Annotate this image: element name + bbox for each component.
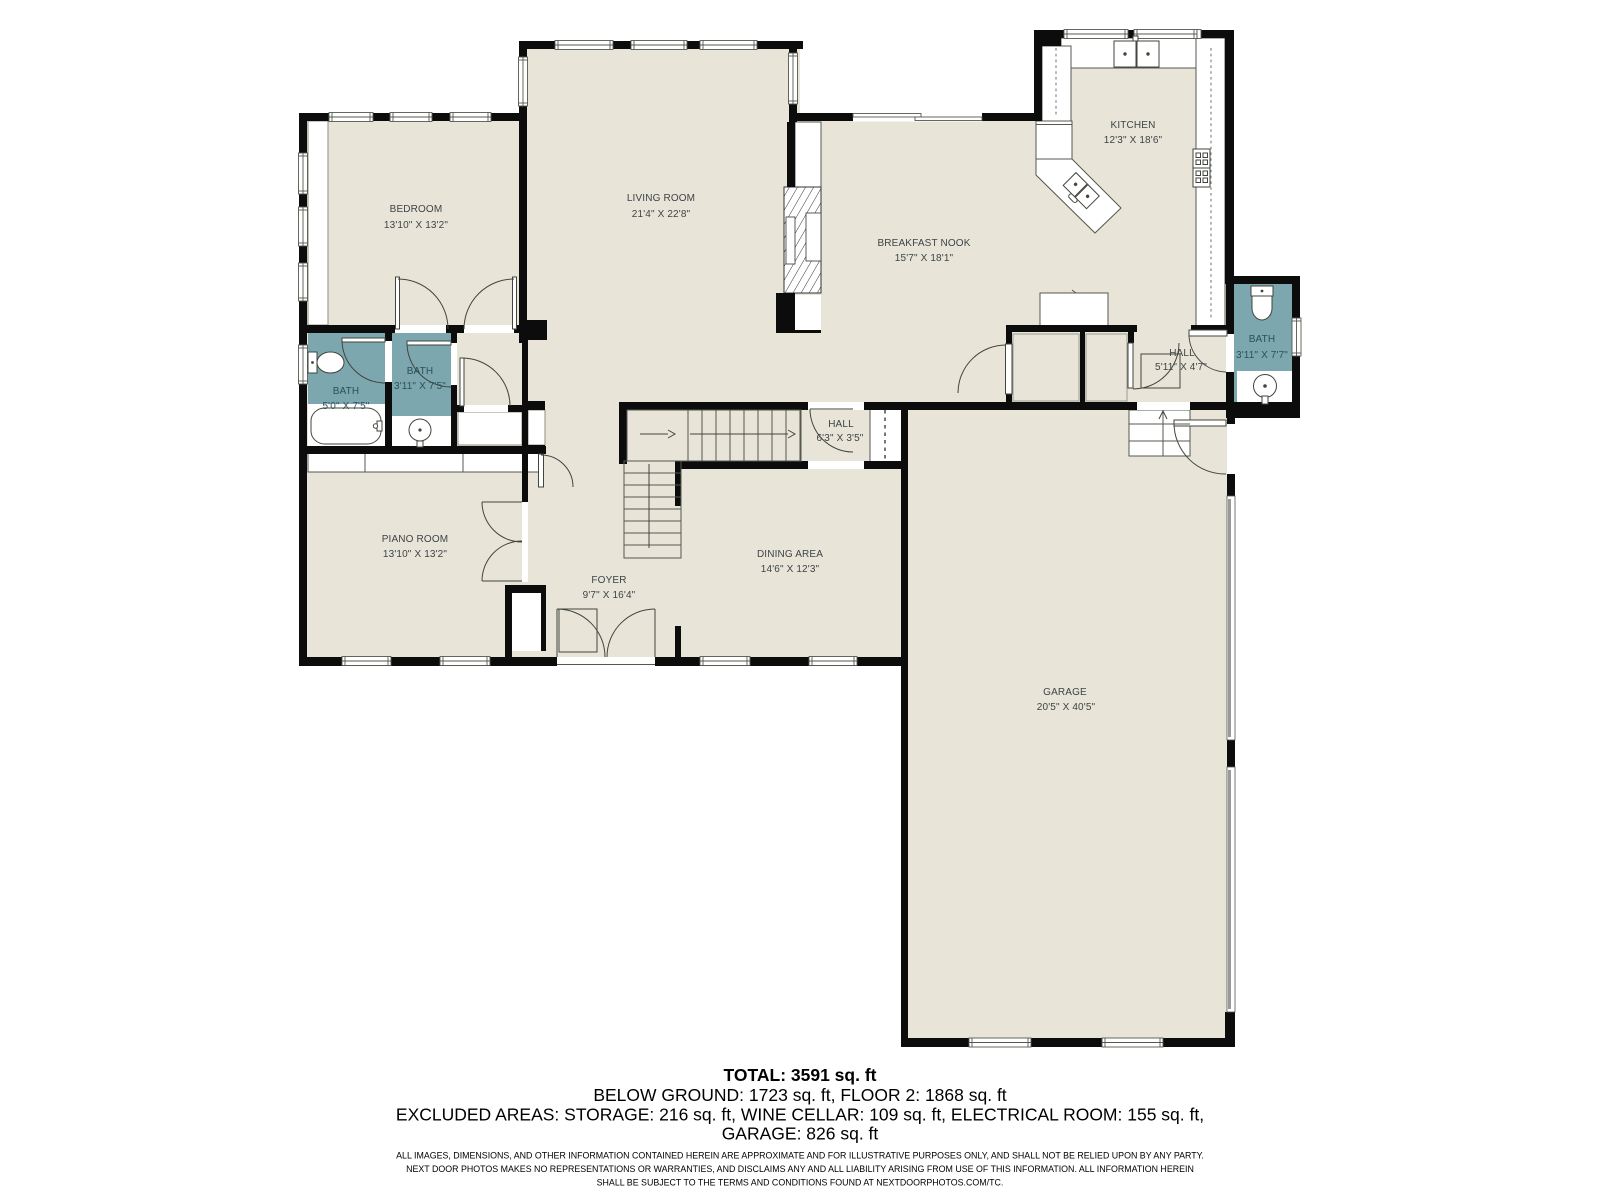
svg-text:NEXT DOOR PHOTOS MAKES NO REPR: NEXT DOOR PHOTOS MAKES NO REPRESENTATION… [406,1164,1194,1174]
svg-text:ALL IMAGES, DIMENSIONS, AND OT: ALL IMAGES, DIMENSIONS, AND OTHER INFORM… [396,1151,1204,1161]
svg-text:HALL: HALL [1169,348,1195,359]
svg-text:BATH: BATH [1249,334,1276,345]
svg-text:GARAGE: 826 sq. ft: GARAGE: 826 sq. ft [722,1124,879,1144]
svg-text:LIVING ROOM: LIVING ROOM [627,193,695,204]
svg-text:SHALL BE SUBJECT TO THE TERMS: SHALL BE SUBJECT TO THE TERMS AND CONDIT… [597,1178,1004,1188]
svg-text:3'11" X 7'5": 3'11" X 7'5" [394,381,446,392]
svg-text:BEDROOM: BEDROOM [390,204,443,215]
svg-text:PIANO ROOM: PIANO ROOM [382,534,449,545]
svg-text:EXCLUDED AREAS: STORAGE: 216 s: EXCLUDED AREAS: STORAGE: 216 sq. ft, WIN… [396,1105,1204,1125]
svg-text:13'10" X 13'2": 13'10" X 13'2" [383,549,447,560]
svg-text:BATH: BATH [333,386,360,397]
svg-text:12'3" X 18'6": 12'3" X 18'6" [1104,135,1163,146]
svg-text:HALL: HALL [828,419,854,430]
svg-text:6'3" X 3'5": 6'3" X 3'5" [816,433,863,444]
svg-text:21'4" X 22'8": 21'4" X 22'8" [632,209,691,220]
svg-text:13'10" X 13'2": 13'10" X 13'2" [384,220,448,231]
svg-text:DINING AREA: DINING AREA [757,549,823,560]
svg-text:20'5" X 40'5": 20'5" X 40'5" [1037,702,1096,713]
svg-text:BREAKFAST NOOK: BREAKFAST NOOK [877,238,970,249]
svg-text:5'0" X 7'5": 5'0" X 7'5" [322,401,369,412]
svg-text:3'11" X 7'7": 3'11" X 7'7" [1236,350,1288,361]
svg-text:KITCHEN: KITCHEN [1111,120,1156,131]
svg-text:TOTAL: 3591 sq. ft: TOTAL: 3591 sq. ft [724,1065,877,1085]
svg-text:BELOW GROUND: 1723 sq. ft, FLO: BELOW GROUND: 1723 sq. ft, FLOOR 2: 1868… [593,1085,1006,1105]
svg-text:9'7" X 16'4": 9'7" X 16'4" [583,590,636,601]
svg-text:BATH: BATH [407,366,434,377]
svg-text:14'6" X 12'3": 14'6" X 12'3" [761,564,820,575]
svg-text:5'11" X 4'7": 5'11" X 4'7" [1155,362,1207,373]
svg-text:FOYER: FOYER [591,575,626,586]
svg-text:15'7" X 18'1": 15'7" X 18'1" [895,253,954,264]
svg-text:GARAGE: GARAGE [1043,687,1087,698]
